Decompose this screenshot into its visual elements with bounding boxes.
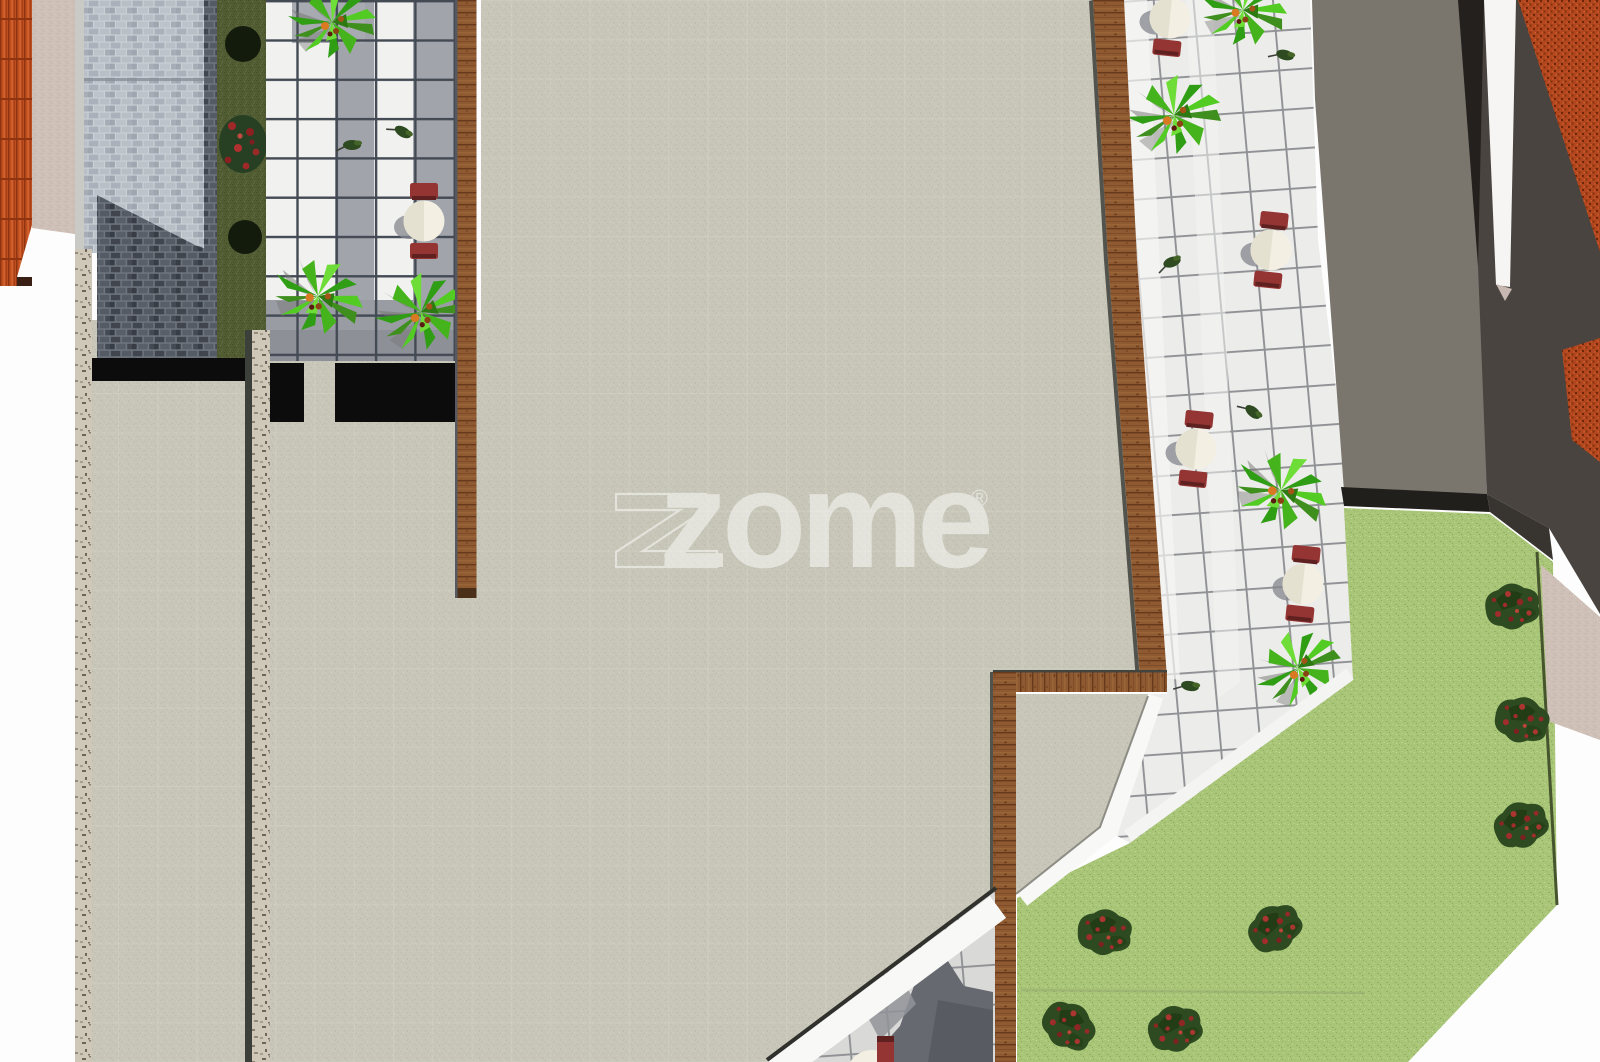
svg-text:®: ® — [971, 485, 988, 511]
svg-text:zome: zome — [659, 443, 990, 597]
